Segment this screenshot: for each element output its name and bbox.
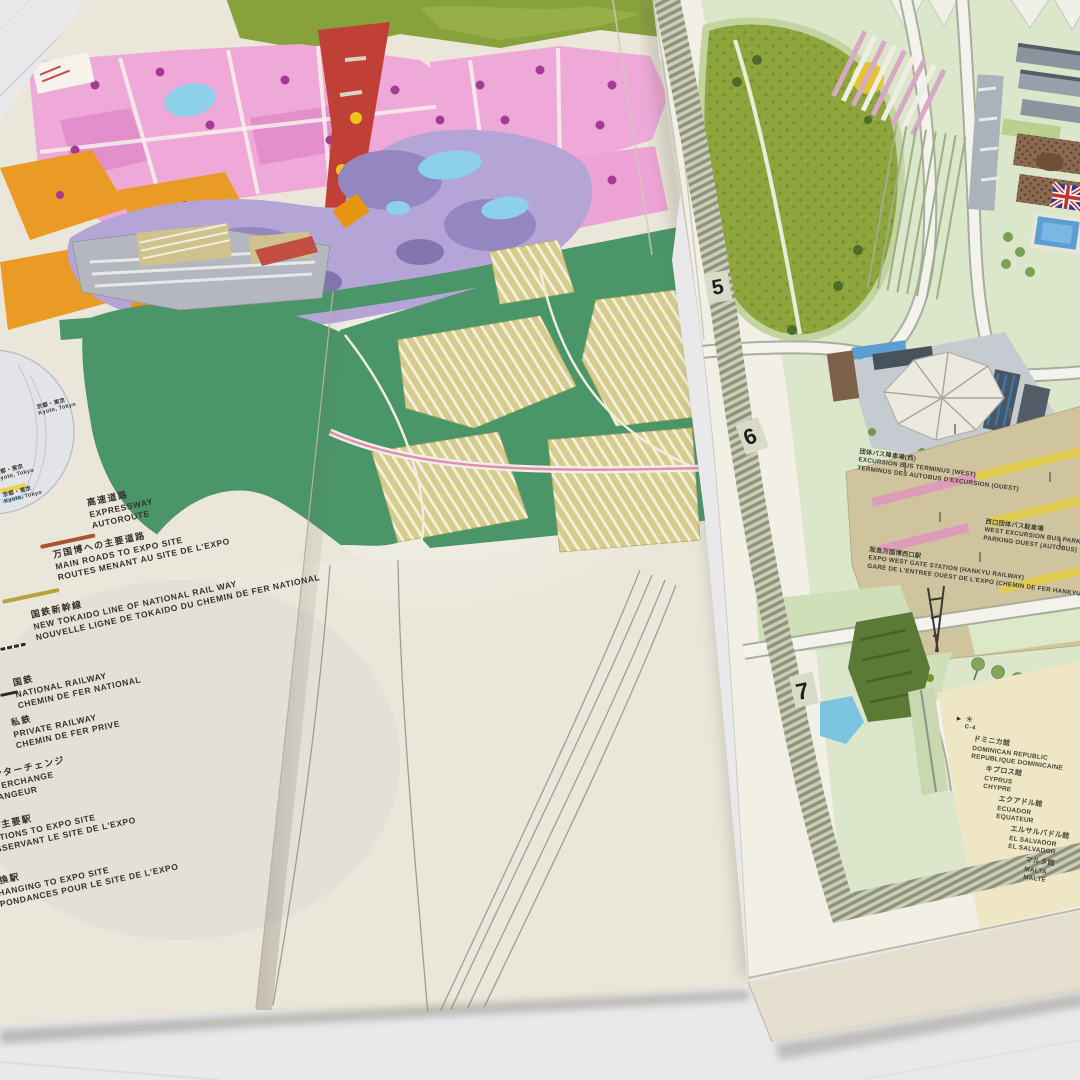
pavilion-list-marker: ► ✳ C-4 (954, 714, 977, 731)
arrow-icon: ► (955, 714, 963, 723)
pavilion-entry-cyprus: キプロス館 CYPRUS CHYPRE (983, 765, 1023, 795)
photo-of-expo70-maps: 高速道路 EXPRESSWAY AUTOROUTE 万国博への主要道路 MAIN… (0, 0, 1080, 1080)
union-jack-flag (1050, 183, 1080, 211)
pavilion-entry-malta: マルタ館 MALTA MALTE (1023, 856, 1056, 885)
